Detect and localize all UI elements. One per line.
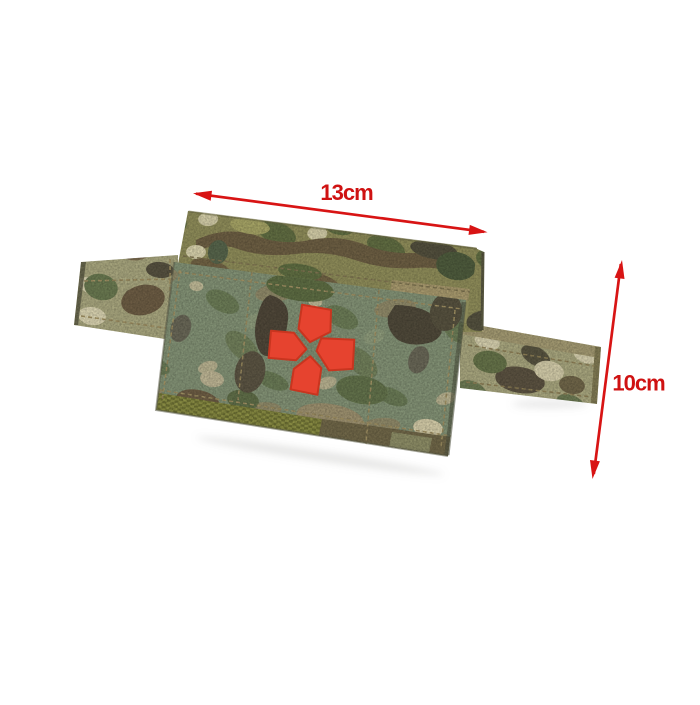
svg-text:10cm: 10cm bbox=[612, 370, 665, 395]
svg-text:13cm: 13cm bbox=[320, 180, 373, 205]
